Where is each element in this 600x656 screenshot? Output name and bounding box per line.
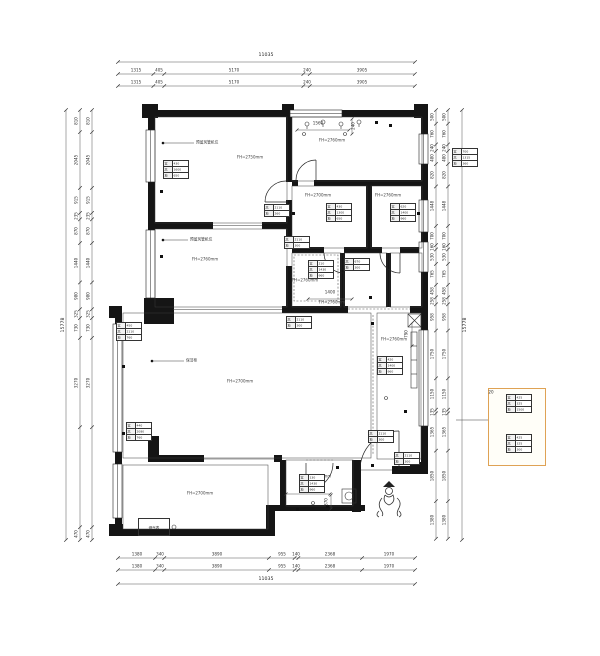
dim-label: 530: [442, 253, 446, 261]
inline-dim-label: 1400: [325, 291, 335, 295]
annotation-row: 高2110: [117, 328, 141, 334]
gas-valve-icon: [172, 525, 176, 529]
annotation-value: 620: [400, 204, 415, 209]
annotation-row: 高1430: [300, 480, 324, 486]
dim-label: 340: [156, 552, 164, 556]
room-height-label: FH=2760mm: [292, 279, 318, 283]
annotation-key: 高: [507, 441, 516, 446]
dim-label: 1440: [86, 258, 90, 268]
annotation-row: 地960: [378, 368, 402, 374]
dim-label: 470: [74, 530, 78, 538]
annotation-table: 宽210高1430地960: [308, 260, 334, 279]
dim-label: 258: [430, 297, 434, 305]
annotation-value: 300: [378, 437, 393, 442]
room-height-label: FH=2760mm: [319, 139, 345, 143]
annotation-key: 地: [453, 161, 462, 166]
dim-label: 760: [442, 130, 446, 138]
annotation-value: 960: [318, 273, 333, 278]
fixture-layer: [122, 120, 503, 529]
annotation-value: 1400: [400, 210, 415, 215]
dim-total-top: 11035: [259, 53, 274, 58]
annotation-key: 宽: [117, 323, 126, 328]
annotation-value: 2110: [126, 329, 141, 334]
annotation-table: 宽430高1300地650: [326, 203, 352, 222]
annotation-row: 宽130: [300, 475, 324, 480]
dim-label: 980: [74, 292, 78, 300]
annotation-row: 宽430: [327, 204, 351, 209]
annotation-table: 高2110地300: [284, 236, 310, 249]
dim-label: 820: [430, 171, 434, 179]
annotation-row: 高2110: [287, 317, 311, 322]
entry-figure-icon: [377, 481, 401, 517]
annotation-value: 650: [336, 216, 351, 221]
annotation-row: 高1400: [391, 209, 415, 215]
dim-label: 405: [155, 80, 163, 84]
dim-label: 3890: [211, 564, 221, 568]
dim-label: 1750: [430, 349, 434, 359]
dim-label: 1970: [383, 552, 393, 556]
annotation-row: 宽440: [127, 423, 151, 428]
annotation-key: 地: [164, 173, 173, 178]
annotation-key: 高: [287, 317, 296, 322]
annotation-value: 425: [516, 435, 531, 440]
dim-label: 870: [86, 227, 90, 235]
dim-label: 1850: [442, 471, 446, 481]
annotation-value: 960: [309, 487, 324, 492]
dim-label: 240: [303, 80, 311, 84]
dim-label: 1970: [383, 564, 393, 568]
annotation-key: 高: [453, 155, 462, 160]
leader-note: 预留风管机位: [196, 141, 218, 145]
annotation-value: 430: [336, 204, 351, 209]
annotation-key: 高: [285, 237, 294, 242]
annotation-row: 地760: [117, 334, 141, 340]
annotation-row: 地300: [507, 446, 531, 452]
annotation-row: 宽210: [309, 261, 333, 266]
floor-plan-canvas: 11035 11035 15778 15778 燃气表 131540551702…: [0, 0, 600, 656]
annotation-table: 宽620高1400地960: [390, 203, 416, 222]
annotation-row: 高2110: [285, 237, 309, 242]
annotation-key: 宽: [507, 395, 516, 400]
annotation-key: 地: [507, 447, 516, 452]
dim-label: 240: [430, 144, 434, 152]
dim-label: 140: [293, 552, 301, 556]
annotation-row: 地960: [309, 272, 333, 278]
annotation-key: 高: [309, 267, 318, 272]
dim-label: 500: [430, 113, 434, 121]
dim-label: 1380: [131, 564, 141, 568]
annotation-key: 地: [117, 335, 126, 340]
annotation-row: 宽700: [453, 149, 477, 154]
annotation-table: 宽130高1430地960: [299, 474, 325, 493]
dim-label: 980: [86, 292, 90, 300]
inline-dim-label: 1560: [313, 122, 323, 126]
annotation-value: 960: [387, 369, 402, 374]
annotation-value: 1315: [462, 155, 477, 160]
dim-label: 958: [442, 314, 446, 322]
annotation-value: 960: [400, 216, 415, 221]
dim-label: 1448: [442, 201, 446, 211]
annotation-value: 260: [274, 211, 289, 216]
dim-label: 765: [442, 270, 446, 278]
annotation-value: 670: [354, 259, 369, 264]
dim-label: 235: [86, 212, 90, 220]
annotation-row: 地300: [285, 242, 309, 248]
dim-label: 2368: [325, 564, 335, 568]
annotation-table: 宽420高1400地960: [377, 356, 403, 375]
dim-label: 1850: [430, 471, 434, 481]
annotation-key: 地: [127, 435, 136, 440]
dim-label: 1380: [442, 515, 446, 525]
annotation-value: 325: [516, 441, 531, 446]
dim-label: 325: [74, 310, 78, 318]
dim-label: 820: [442, 171, 446, 179]
annotation-value: 440: [136, 423, 151, 428]
dim-label: 1448: [430, 201, 434, 211]
dim-label: 160: [442, 243, 446, 251]
annotation-value: 1300: [336, 210, 351, 215]
annotation-value: 2110: [404, 453, 419, 458]
dim-label: 135: [442, 408, 446, 416]
annotation-key: 高: [164, 167, 173, 172]
annotation-key: 高: [391, 210, 400, 215]
dim-total-bottom: 11035: [259, 577, 274, 582]
annotation-table: 高2110地260: [264, 204, 290, 217]
annotation-table: 高2110地300: [394, 452, 420, 465]
annotation-key: 宽: [309, 261, 318, 266]
annotation-value: 130: [309, 475, 324, 480]
annotation-row: 地960: [391, 215, 415, 221]
annotation-key: 高: [378, 363, 387, 368]
dim-label: 135: [430, 408, 434, 416]
annotation-value: 2080: [136, 429, 151, 434]
dim-label: 258: [442, 297, 446, 305]
dim-label: 458: [442, 287, 446, 295]
annotation-value: 1430: [309, 481, 324, 486]
annotation-value: 325: [516, 401, 531, 406]
annotation-value: 300: [296, 323, 311, 328]
annotation-key: 宽: [327, 204, 336, 209]
annotation-key: 宽: [507, 435, 516, 440]
gas-meter-box: 燃气表: [138, 518, 170, 536]
annotation-key: 地: [391, 216, 400, 221]
annotation-table: 宽425高325地1500: [506, 394, 532, 413]
annotation-value: 2110: [294, 237, 309, 242]
annotation-value: 1400: [387, 363, 402, 368]
annotation-value: 1600: [173, 167, 188, 172]
dim-label: 3270: [74, 377, 78, 387]
annotation-table: 高2110地300: [368, 430, 394, 443]
dim-label: 810: [86, 117, 90, 125]
dim-label: 140: [293, 564, 301, 568]
annotation-row: 地760: [127, 434, 151, 440]
dim-label: 700: [430, 232, 434, 240]
dim-label: 760: [430, 130, 434, 138]
leader-note: 预留风管机位: [190, 238, 212, 242]
annotation-table: 宽440高2080地760: [126, 422, 152, 441]
annotation-value: 1430: [318, 267, 333, 272]
annotation-row: 高2110: [265, 205, 289, 210]
dim-label: 810: [74, 117, 78, 125]
annotation-row: 高1400: [378, 362, 402, 368]
annotation-key: 地: [327, 216, 336, 221]
dim-label: 1750: [442, 349, 446, 359]
annotation-row: 地650: [327, 215, 351, 221]
annotation-value: 2110: [274, 205, 289, 210]
dim-label: 470: [86, 530, 90, 538]
dim-label: 1365: [442, 427, 446, 437]
annotation-row: 高1430: [309, 266, 333, 272]
dim-label: 955: [278, 564, 286, 568]
dim-label: 730: [74, 324, 78, 332]
dim-label: 3905: [357, 80, 367, 84]
dim-label: 340: [156, 564, 164, 568]
dim-label: 5170: [229, 80, 239, 84]
inline-dim-label: 240: [352, 122, 356, 130]
annotation-table: 宽450高2110地760: [116, 322, 142, 341]
dim-label: 1315: [130, 68, 140, 72]
dim-label: 240: [442, 144, 446, 152]
annotation-value: 1500: [516, 407, 531, 412]
annotation-value: 425: [516, 395, 531, 400]
dim-label: 5170: [229, 68, 239, 72]
annotation-row: 地360: [453, 160, 477, 166]
annotation-row: 地260: [265, 210, 289, 216]
annotation-row: 高1600: [164, 166, 188, 172]
annotation-key: 高: [127, 429, 136, 434]
dim-label: 160: [430, 243, 434, 251]
dim-label: 458: [430, 287, 434, 295]
annotation-row: 高1300: [327, 209, 351, 215]
room-height-label: FH=2750mm: [237, 156, 263, 160]
annotation-row: 地650: [164, 172, 188, 178]
dim-label: 915: [74, 197, 78, 205]
annotation-table: 高670地300: [344, 258, 370, 271]
annotation-row: 高325: [507, 400, 531, 406]
annotation-value: 450: [126, 323, 141, 328]
dim-label: 530: [430, 253, 434, 261]
annotation-row: 地1500: [507, 406, 531, 412]
annotation-key: 高: [507, 401, 516, 406]
annotation-key: 地: [345, 265, 354, 270]
room-height-label: FH=2760mm: [375, 194, 401, 198]
annotation-key: 地: [395, 459, 404, 464]
annotation-key: 高: [395, 453, 404, 458]
annotation-row: 高2110: [395, 453, 419, 458]
dim-label: 700: [442, 232, 446, 240]
gas-meter-label: 燃气表: [149, 524, 160, 529]
dim-label: 480: [442, 154, 446, 162]
annotation-key: 高: [345, 259, 354, 264]
annotation-value: 700: [462, 149, 477, 154]
dim-label: 1380: [430, 515, 434, 525]
annotation-key: 地: [265, 211, 274, 216]
annotation-row: 地300: [345, 264, 369, 270]
annotation-table: 宽700高1315地360: [452, 148, 478, 167]
annotation-value: 2110: [296, 317, 311, 322]
dim-total-left: 15778: [61, 318, 66, 333]
dim-label: 3270: [86, 377, 90, 387]
annotation-key: 地: [507, 407, 516, 412]
dim-total-right: 15778: [463, 318, 468, 333]
annotation-value: 360: [462, 161, 477, 166]
dim-label: 325: [86, 310, 90, 318]
room-height-label: FH=2760mm: [319, 301, 345, 305]
dim-label: 1315: [130, 80, 140, 84]
dim-label: 955: [278, 552, 286, 556]
dim-label: 2368: [325, 552, 335, 556]
room-height-label: FH=2700mm: [227, 380, 253, 384]
annotation-row: 宽425: [507, 435, 531, 440]
annotation-row: 宽620: [391, 204, 415, 209]
annotation-key: 宽: [164, 161, 173, 166]
annotation-key: 地: [300, 487, 309, 492]
dim-label: 405: [155, 68, 163, 72]
annotation-value: 300: [516, 447, 531, 452]
annotation-row: 地960: [300, 486, 324, 492]
inline-dim-label: 20: [488, 391, 493, 395]
dim-label: 958: [430, 314, 434, 322]
annotation-key: 宽: [127, 423, 136, 428]
annotation-key: 地: [309, 273, 318, 278]
annotation-key: 宽: [378, 357, 387, 362]
annotation-key: 高: [117, 329, 126, 334]
dim-label: 1150: [430, 389, 434, 399]
annotation-value: 2110: [378, 431, 393, 436]
wall-layer: [109, 104, 428, 536]
annotation-row: 高670: [345, 259, 369, 264]
dim-label: 235: [74, 212, 78, 220]
dim-label: 870: [74, 227, 78, 235]
annotation-row: 地300: [369, 436, 393, 442]
annotation-value: 300: [404, 459, 419, 464]
dim-label: 480: [430, 154, 434, 162]
annotation-table: 宽425高325地300: [506, 434, 532, 453]
dim-label: 765: [430, 270, 434, 278]
annotation-value: 300: [354, 265, 369, 270]
inline-dim-label: 370: [325, 498, 329, 506]
dim-label: 1440: [74, 258, 78, 268]
annotation-value: 760: [136, 435, 151, 440]
annotation-value: 300: [294, 243, 309, 248]
room-height-label: FH=2760mm: [381, 338, 407, 342]
annotation-key: 宽: [300, 475, 309, 480]
annotation-value: 650: [173, 173, 188, 178]
annotation-row: 高2110: [369, 431, 393, 436]
annotation-value: 210: [318, 261, 333, 266]
dim-label: 500: [442, 113, 446, 121]
annotation-row: 宽420: [378, 357, 402, 362]
annotation-table: 宽430高1600地650: [163, 160, 189, 179]
annotation-row: 高2080: [127, 428, 151, 434]
leader-note: 保洁柜: [186, 359, 197, 363]
dim-label: 2045: [86, 155, 90, 165]
room-height-label: FH=2700mm: [305, 194, 331, 198]
dim-label: 1365: [430, 427, 434, 437]
annotation-row: 高1315: [453, 154, 477, 160]
annotation-key: 宽: [453, 149, 462, 154]
annotation-key: 地: [287, 323, 296, 328]
dim-label: 2045: [74, 155, 78, 165]
annotation-key: 高: [265, 205, 274, 210]
dim-label: 915: [86, 197, 90, 205]
dim-label: 1380: [131, 552, 141, 556]
annotation-key: 地: [369, 437, 378, 442]
annotation-key: 高: [300, 481, 309, 486]
dim-label: 3905: [357, 68, 367, 72]
annotation-row: 宽450: [117, 323, 141, 328]
annotation-key: 地: [378, 369, 387, 374]
annotation-row: 宽425: [507, 395, 531, 400]
annotation-key: 高: [327, 210, 336, 215]
room-height-label: FH=2700mm: [187, 492, 213, 496]
annotation-value: 420: [387, 357, 402, 362]
annotation-value: 430: [173, 161, 188, 166]
annotation-row: 高325: [507, 440, 531, 446]
annotation-row: 地300: [287, 322, 311, 328]
annotation-table: 高2110地300: [286, 316, 312, 329]
annotation-key: 高: [369, 431, 378, 436]
room-height-label: FH=2760mm: [192, 258, 218, 262]
annotation-key: 地: [285, 243, 294, 248]
dim-label: 730: [86, 324, 90, 332]
annotation-row: 地300: [395, 458, 419, 464]
dim-label: 240: [303, 68, 311, 72]
shaft-icon: [408, 314, 421, 327]
dim-label: 3890: [211, 552, 221, 556]
dim-label: 1150: [442, 389, 446, 399]
annotation-value: 760: [126, 335, 141, 340]
annotation-key: 宽: [391, 204, 400, 209]
annotation-row: 宽430: [164, 161, 188, 166]
